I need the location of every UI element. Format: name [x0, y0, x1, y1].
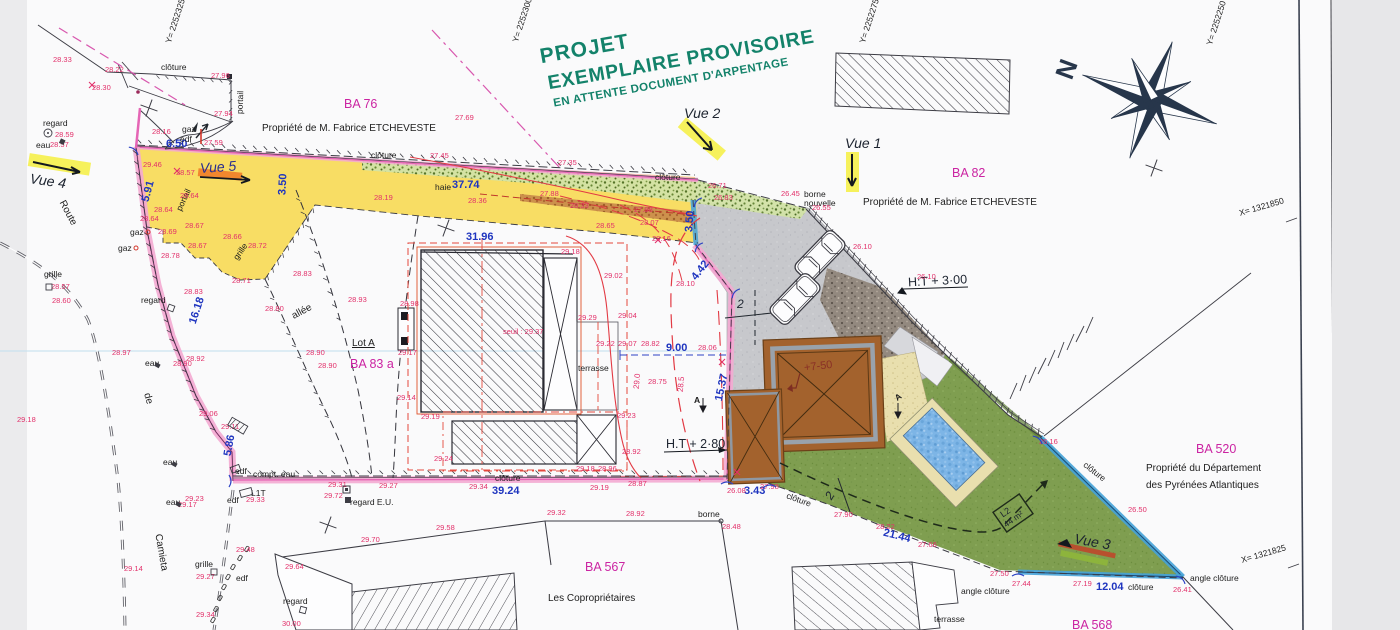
svg-text:edf: edf [180, 134, 192, 144]
svg-text:28.75: 28.75 [648, 377, 667, 386]
svg-text:28.98: 28.98 [400, 299, 419, 308]
svg-text:27.69: 27.69 [455, 113, 474, 122]
svg-text:borne: borne [698, 509, 720, 519]
svg-text:clôture: clôture [1128, 582, 1154, 592]
svg-text:9.00: 9.00 [666, 342, 687, 354]
svg-text:angle clôture: angle clôture [1190, 573, 1239, 583]
svg-text:30.00: 30.00 [282, 619, 301, 628]
svg-text:29.14: 29.14 [124, 564, 143, 573]
svg-text:28.5: 28.5 [676, 376, 686, 393]
svg-text:regard: regard [283, 596, 308, 606]
svg-text:29.27: 29.27 [379, 481, 398, 490]
svg-text:29.48: 29.48 [236, 545, 255, 554]
svg-text:clôture: clôture [161, 62, 187, 72]
svg-text:26.45: 26.45 [781, 189, 800, 198]
svg-text:terrasse: terrasse [578, 363, 609, 373]
svg-text:29.14: 29.14 [397, 393, 416, 402]
svg-text:28.33: 28.33 [570, 201, 589, 210]
svg-text:grille: grille [195, 559, 213, 569]
svg-text:29.18: 29.18 [576, 464, 595, 473]
svg-text:28.97: 28.97 [112, 348, 131, 357]
svg-text:29.02: 29.02 [604, 271, 623, 280]
svg-text:28.57: 28.57 [50, 140, 69, 149]
svg-text:28.22: 28.22 [105, 65, 124, 74]
svg-text:29.22: 29.22 [596, 339, 615, 348]
svg-text:Les Copropriétaires: Les Copropriétaires [548, 593, 635, 604]
svg-text:29.0: 29.0 [632, 373, 642, 390]
svg-text:28.60: 28.60 [52, 296, 71, 305]
svg-text:2: 2 [736, 297, 744, 311]
svg-text:28.72: 28.72 [248, 241, 267, 250]
svg-text:angle clôture: angle clôture [961, 586, 1010, 596]
svg-text:27.66: 27.66 [918, 540, 937, 549]
svg-text:H.T + 2·80: H.T + 2·80 [666, 437, 725, 451]
svg-text:29.19: 29.19 [590, 483, 609, 492]
svg-text:37.74: 37.74 [452, 179, 480, 191]
svg-text:28.90: 28.90 [318, 361, 337, 370]
svg-text:29.31: 29.31 [328, 480, 347, 489]
svg-text:28.10: 28.10 [676, 279, 695, 288]
svg-text:haie: haie [435, 182, 451, 192]
svg-text:Lot A: Lot A [352, 338, 375, 349]
svg-text:Propriété de M. Fabrice ETCHEV: Propriété de M. Fabrice ETCHEVESTE [863, 197, 1037, 208]
svg-text:28.92: 28.92 [622, 447, 641, 456]
svg-text:Vue 1: Vue 1 [845, 135, 881, 151]
svg-text:26.41: 26.41 [1173, 585, 1192, 594]
svg-text:29.19: 29.19 [421, 412, 440, 421]
svg-text:27.19: 27.19 [1073, 579, 1092, 588]
svg-text:gaz: gaz [182, 124, 196, 134]
svg-text:gaz: gaz [118, 243, 132, 253]
svg-text:3.50: 3.50 [683, 210, 696, 232]
svg-text:28.66: 28.66 [223, 232, 242, 241]
svg-text:28.90: 28.90 [173, 359, 192, 368]
svg-text:29.29: 29.29 [578, 313, 597, 322]
svg-text:seuil : 29.37: seuil : 29.37 [503, 327, 543, 336]
svg-text:28.93: 28.93 [348, 295, 367, 304]
svg-text:des Pyrénées Atlantiques: des Pyrénées Atlantiques [1146, 480, 1259, 491]
svg-text:27.98: 27.98 [634, 205, 653, 214]
svg-text:29.04: 29.04 [618, 311, 637, 320]
svg-text:27.94: 27.94 [214, 109, 233, 118]
svg-text:28.57: 28.57 [51, 282, 70, 291]
svg-text:28.64: 28.64 [140, 214, 159, 223]
svg-text:29.32: 29.32 [547, 508, 566, 517]
svg-text:28.59: 28.59 [55, 130, 74, 139]
svg-text:29.23: 29.23 [617, 411, 636, 420]
svg-text:BA 82: BA 82 [952, 166, 985, 180]
svg-text:terrasse: terrasse [934, 614, 965, 624]
svg-text:29.58: 29.58 [436, 523, 455, 532]
svg-text:26.55: 26.55 [812, 203, 831, 212]
svg-text:grille: grille [44, 269, 62, 279]
svg-text:28.83: 28.83 [184, 287, 203, 296]
svg-text:Propriété du Département: Propriété du Département [1146, 463, 1261, 474]
svg-text:28.65: 28.65 [596, 221, 615, 230]
svg-text:regard: regard [141, 295, 166, 305]
svg-text:eau: eau [36, 140, 50, 150]
svg-text:28.16: 28.16 [152, 127, 171, 136]
svg-text:29.46: 29.46 [143, 160, 162, 169]
svg-text:27.90: 27.90 [834, 510, 853, 519]
svg-text:compt. eau: compt. eau [253, 469, 295, 479]
svg-text:28.36: 28.36 [468, 196, 487, 205]
svg-text:26.08: 26.08 [727, 486, 746, 495]
svg-text:28.78: 28.78 [161, 251, 180, 260]
svg-text:28.06: 28.06 [698, 343, 717, 352]
svg-text:28.90: 28.90 [306, 348, 325, 357]
svg-text:28.80: 28.80 [265, 304, 284, 313]
svg-text:A: A [694, 395, 700, 405]
svg-text:27.50: 27.50 [990, 569, 1009, 578]
svg-text:edf: edf [236, 573, 248, 583]
svg-text:portail: portail [235, 91, 246, 115]
svg-text:29.70: 29.70 [361, 535, 380, 544]
svg-text:Propriété de M. Fabrice ETCHEV: Propriété de M. Fabrice ETCHEVESTE [262, 123, 436, 134]
svg-text:39.24: 39.24 [492, 485, 520, 497]
svg-text:28.87: 28.87 [628, 479, 647, 488]
svg-text:28.67: 28.67 [185, 221, 204, 230]
svg-text:BA 567: BA 567 [585, 560, 625, 574]
svg-text:29.06: 29.06 [199, 409, 218, 418]
svg-text:27.35: 27.35 [558, 158, 577, 167]
svg-text:27.45: 27.45 [430, 151, 449, 160]
svg-text:BA 568: BA 568 [1072, 618, 1112, 630]
svg-text:28.69: 28.69 [158, 227, 177, 236]
svg-text:regard: regard [43, 118, 68, 128]
svg-text:Vue 2: Vue 2 [684, 105, 721, 121]
svg-text:27.59: 27.59 [204, 138, 223, 147]
svg-text:BA 520: BA 520 [1196, 442, 1236, 456]
svg-text:28.92: 28.92 [626, 509, 645, 518]
svg-text:28.07: 28.07 [640, 218, 659, 227]
svg-text:29.18: 29.18 [17, 415, 36, 424]
svg-text:27.96: 27.96 [211, 71, 230, 80]
svg-text:27.88: 27.88 [540, 189, 559, 198]
svg-text:26.16: 26.16 [1039, 437, 1058, 446]
svg-text:3.50: 3.50 [276, 173, 289, 195]
svg-text:29.34: 29.34 [469, 482, 488, 491]
svg-text:regard E.U.: regard E.U. [350, 497, 393, 507]
svg-text:28.30: 28.30 [92, 83, 111, 92]
svg-text:29.64: 29.64 [285, 562, 304, 571]
svg-text:28.71: 28.71 [232, 276, 251, 285]
svg-text:29.07: 29.07 [618, 339, 637, 348]
svg-text:clôture: clôture [495, 473, 521, 483]
svg-text:29.72: 29.72 [324, 491, 343, 500]
svg-text:29.34: 29.34 [196, 610, 215, 619]
svg-text:BA 83 a: BA 83 a [350, 357, 394, 371]
svg-text:28.82: 28.82 [641, 339, 660, 348]
svg-text:28.67: 28.67 [188, 241, 207, 250]
svg-text:28.33: 28.33 [53, 55, 72, 64]
svg-text:BA 76: BA 76 [344, 97, 377, 111]
svg-text:12.04: 12.04 [1096, 581, 1124, 593]
svg-text:29.17: 29.17 [398, 348, 417, 357]
svg-text:28.22: 28.22 [876, 522, 895, 531]
svg-text:edf: edf [227, 495, 239, 505]
svg-text:Vue 5: Vue 5 [199, 158, 237, 177]
svg-text:26.50: 26.50 [1128, 505, 1147, 514]
svg-text:clôture: clôture [655, 172, 681, 182]
svg-text:clôture: clôture [371, 150, 397, 160]
svg-text:26.71: 26.71 [708, 181, 727, 190]
svg-text:31.96: 31.96 [466, 231, 494, 243]
svg-text:29.24: 29.24 [434, 454, 453, 463]
svg-text:28.64: 28.64 [154, 205, 173, 214]
svg-text:28.57: 28.57 [176, 168, 195, 177]
svg-text:28.48: 28.48 [722, 522, 741, 531]
svg-text:29.18: 29.18 [561, 247, 580, 256]
svg-text:26.83: 26.83 [714, 193, 733, 202]
svg-text:28.96: 28.96 [598, 464, 617, 473]
svg-text:29.33: 29.33 [246, 495, 265, 504]
svg-text:27.44: 27.44 [1012, 579, 1031, 588]
svg-text:26.10: 26.10 [917, 272, 936, 281]
svg-text:edf: edf [235, 466, 247, 476]
svg-text:29.27: 29.27 [196, 572, 215, 581]
svg-text:28.64: 28.64 [180, 191, 199, 200]
svg-text:28.19: 28.19 [374, 193, 393, 202]
svg-text:28.83: 28.83 [293, 269, 312, 278]
svg-text:gaz: gaz [130, 227, 144, 237]
svg-text:26.10: 26.10 [853, 242, 872, 251]
svg-text:28.16: 28.16 [652, 234, 671, 243]
